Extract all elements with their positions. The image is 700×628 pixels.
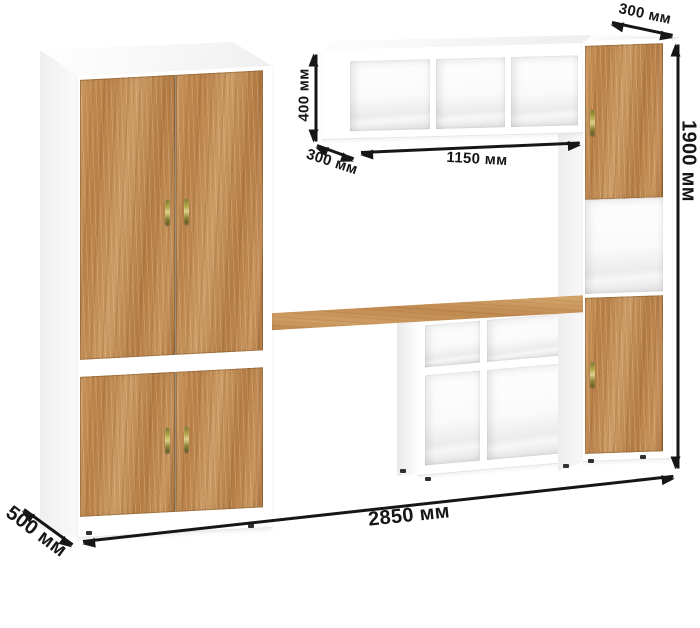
furniture-foot [588,459,594,463]
cabinet-open-shelf [585,197,663,294]
furniture-foot [86,531,92,535]
wardrobe-front [78,66,272,538]
shelf-cubby [511,55,578,127]
desk-top-surface [258,288,592,314]
door-handle [184,198,189,224]
door-handle [165,199,170,225]
desk-support-panel [397,321,416,476]
furniture-foot [640,455,646,459]
dimension-label-shelf-height: 400 мм [296,68,313,121]
dimension-arrow-shelf-height [315,55,318,142]
dimension-label-shelf-width: 1150 мм [446,149,508,169]
furniture-foot [425,477,431,481]
door-handle [165,427,170,453]
door-gap [175,372,176,512]
wardrobe-lower-right-door [176,367,263,512]
furniture-foot [563,464,569,468]
dimension-label-total-height: 1900 мм [677,120,700,202]
shelf-cubby [436,57,505,129]
wardrobe-left-panel [40,50,78,538]
wardrobe-upper-left-door [80,75,175,360]
cube-cubby [425,371,480,466]
dimension-arrow-total-height [677,45,680,469]
cabinet-bottom-door [585,295,663,454]
dimension-label-total-width: 2850 мм [367,500,451,531]
furniture-foot [400,469,406,473]
door-gap [175,75,176,355]
door-handle [590,362,595,388]
cube-cubby [425,321,480,368]
wardrobe-upper-right-door [176,70,263,355]
cabinet-top-door [585,43,663,200]
furniture-dimension-diagram: 300 мм 1900 мм 400 мм 1150 мм 300 мм 285… [0,0,700,628]
cube-shelf [418,302,578,476]
shelf-cubby [350,59,430,131]
door-handle [184,426,189,452]
wall-shelf [322,43,583,140]
right-cabinet [583,38,672,462]
door-handle [590,110,595,136]
wardrobe-lower-left-door [80,372,175,517]
